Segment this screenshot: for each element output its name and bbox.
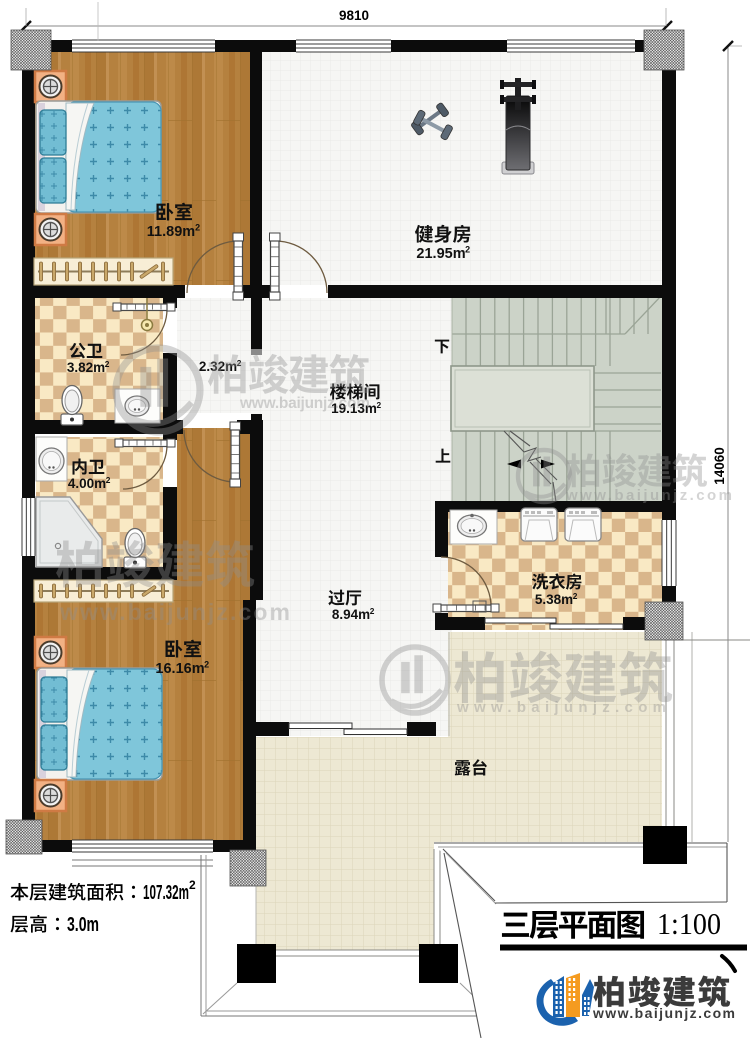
svg-text:2: 2 [106,475,111,485]
svg-text:2: 2 [204,659,209,669]
svg-text:2: 2 [195,222,200,232]
svg-text:4.00m: 4.00m [68,476,106,491]
svg-text:2: 2 [105,359,110,369]
svg-text:21.95m: 21.95m [416,246,465,262]
svg-text:2: 2 [573,591,578,601]
svg-text:107.32m: 107.32m [143,882,189,904]
svg-text:2: 2 [377,400,382,410]
svg-text:3.0m: 3.0m [67,914,99,936]
svg-text:3.82m: 3.82m [67,360,105,375]
svg-text:2: 2 [465,244,470,254]
svg-text:9810: 9810 [339,8,369,23]
svg-text:2: 2 [189,878,196,892]
svg-text:5.38m: 5.38m [535,592,573,607]
svg-text:www.baijunjz.com: www.baijunjz.com [239,395,370,412]
svg-text:8.94m: 8.94m [332,607,370,622]
svg-text:1:100: 1:100 [657,906,721,941]
svg-text:16.16m: 16.16m [155,661,204,677]
svg-text:11.89m: 11.89m [147,224,195,240]
svg-text:2: 2 [370,606,375,616]
svg-text:www.baijunjz.com: www.baijunjz.com [592,1005,737,1021]
svg-text:14060: 14060 [712,447,727,485]
